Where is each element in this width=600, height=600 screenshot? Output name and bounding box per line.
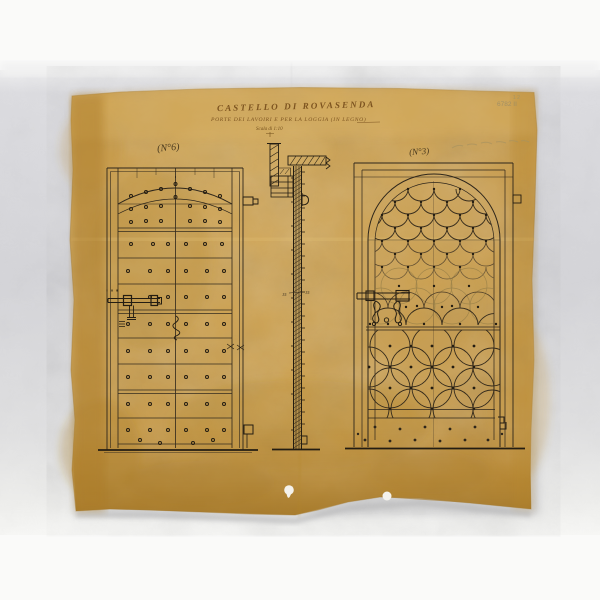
- svg-text:Scala di 1:10: Scala di 1:10: [256, 127, 283, 132]
- svg-text:PORTE DEI LAVOIRI E PER LA LOG: PORTE DEI LAVOIRI E PER LA LOGGIA (IN LE…: [210, 116, 366, 123]
- svg-text:15: 15: [282, 292, 287, 297]
- svg-text:(N°6): (N°6): [157, 142, 181, 155]
- svg-text:1 2: 1 2: [513, 95, 520, 101]
- svg-text:15: 15: [305, 290, 310, 295]
- svg-text:(N°3): (N°3): [409, 146, 430, 157]
- svg-text:6782 II: 6782 II: [497, 101, 517, 108]
